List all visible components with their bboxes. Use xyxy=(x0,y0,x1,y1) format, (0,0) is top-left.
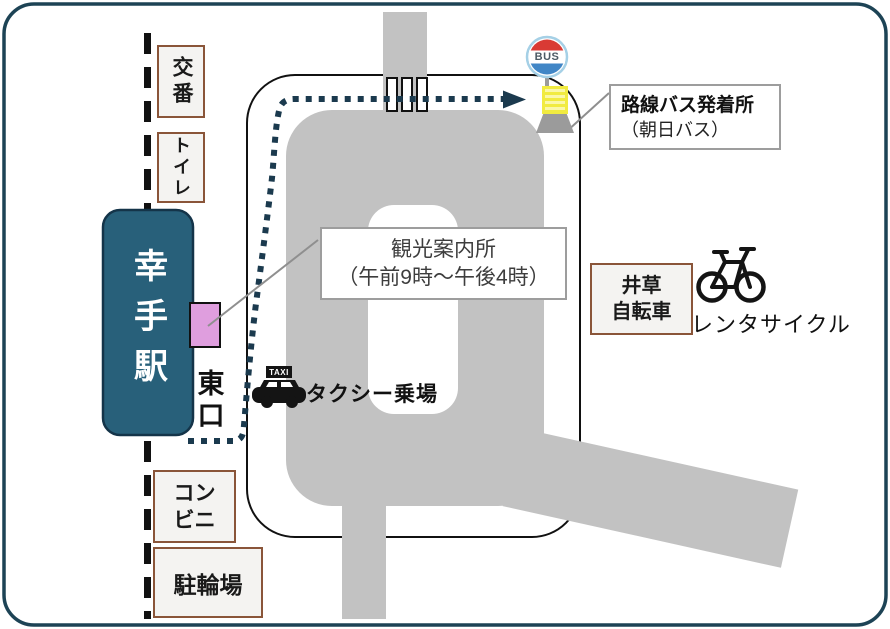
bicycle-icon xyxy=(699,249,764,301)
crosswalk-icon xyxy=(387,78,427,111)
bus-timetable-sign xyxy=(542,86,568,114)
bus-sign-circle xyxy=(527,37,567,77)
station-building xyxy=(103,210,193,435)
tourist-info-marker xyxy=(190,303,220,347)
road-bottom xyxy=(342,505,386,619)
station-area-map: 交番 トイレ 幸手駅 東口 観光案内所 （午前9時～午後4時） 路線バス発着所 … xyxy=(0,0,890,629)
map-canvas xyxy=(0,0,890,629)
road-diagonal xyxy=(503,428,799,568)
